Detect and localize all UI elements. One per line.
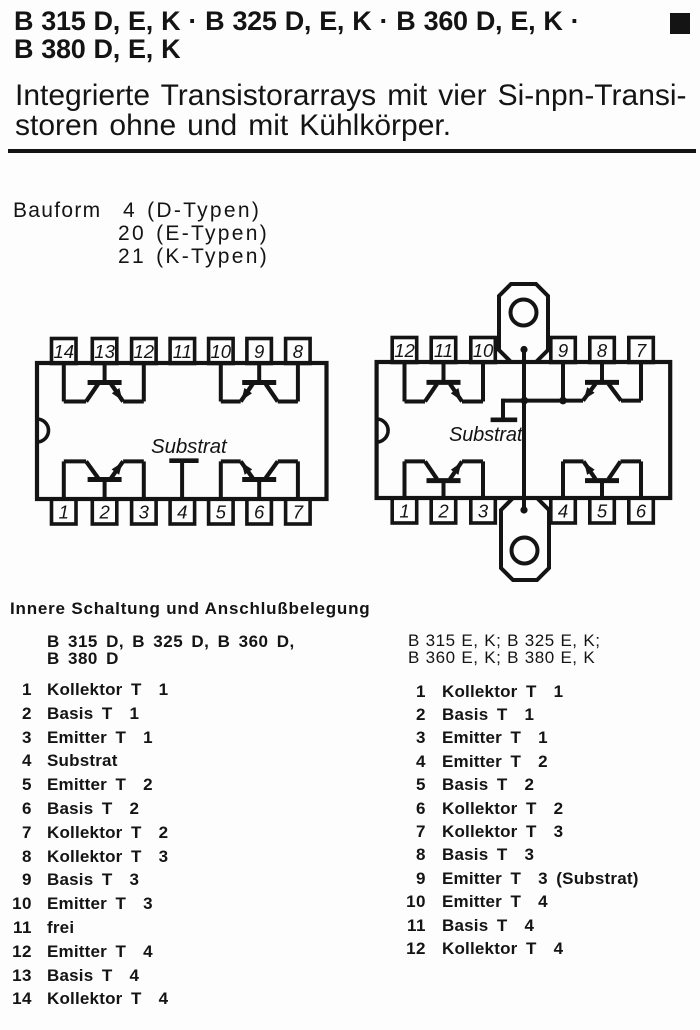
svg-text:4: 4 <box>177 502 187 523</box>
svg-text:7: 7 <box>293 502 304 523</box>
svg-text:8: 8 <box>293 341 304 362</box>
svg-text:10: 10 <box>211 341 232 362</box>
svg-text:9: 9 <box>254 341 264 362</box>
svg-text:3: 3 <box>139 502 150 523</box>
svg-text:13: 13 <box>94 341 115 362</box>
svg-text:1: 1 <box>399 501 409 522</box>
svg-text:Substrat: Substrat <box>449 424 524 446</box>
svg-text:12: 12 <box>134 341 155 362</box>
svg-text:Substrat: Substrat <box>151 435 228 458</box>
svg-text:5: 5 <box>597 501 608 522</box>
svg-text:11: 11 <box>434 340 453 361</box>
svg-text:5: 5 <box>216 502 227 523</box>
svg-text:3: 3 <box>478 501 489 522</box>
svg-text:9: 9 <box>558 340 568 361</box>
svg-text:6: 6 <box>254 502 265 523</box>
svg-text:12: 12 <box>394 340 415 361</box>
svg-text:4: 4 <box>558 501 568 522</box>
svg-text:2: 2 <box>98 502 110 523</box>
svg-text:7: 7 <box>636 340 647 361</box>
svg-text:8: 8 <box>597 340 608 361</box>
svg-text:14: 14 <box>54 341 75 362</box>
svg-text:11: 11 <box>173 341 192 362</box>
svg-text:2: 2 <box>437 501 449 522</box>
svg-text:1: 1 <box>59 502 69 523</box>
svg-text:6: 6 <box>636 501 647 522</box>
svg-text:10: 10 <box>473 340 494 361</box>
